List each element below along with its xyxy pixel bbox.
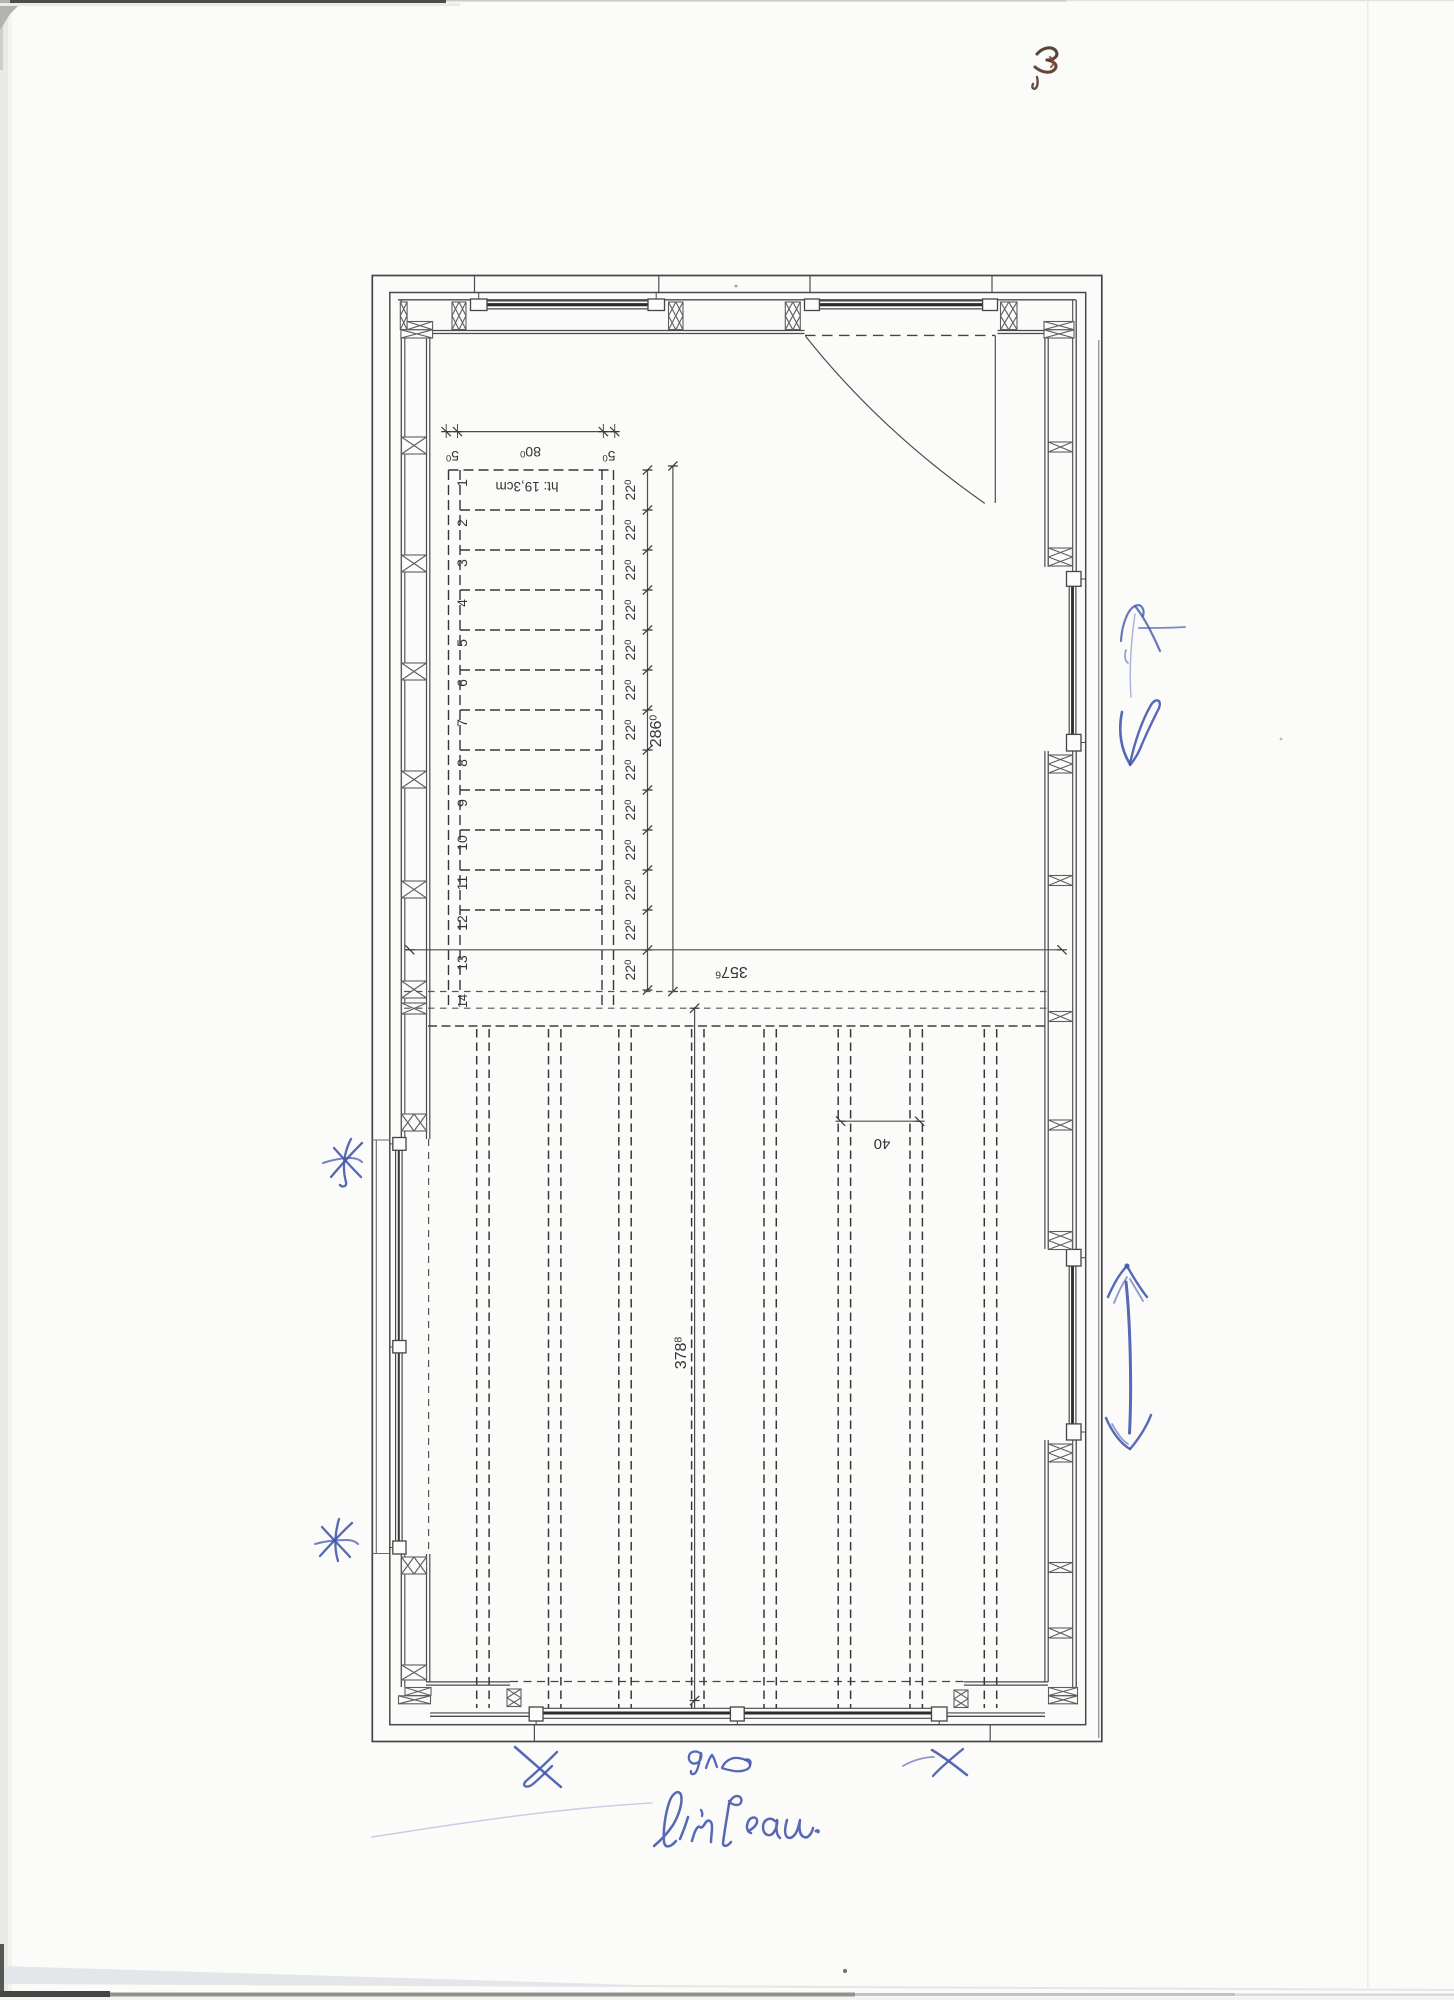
svg-text:4: 4 bbox=[454, 599, 470, 607]
svg-text:6: 6 bbox=[454, 679, 470, 687]
svg-text:14: 14 bbox=[456, 994, 470, 1008]
svg-text:8: 8 bbox=[454, 759, 470, 767]
svg-text:3: 3 bbox=[454, 559, 470, 567]
svg-text:12: 12 bbox=[454, 915, 470, 931]
svg-text:9: 9 bbox=[454, 799, 470, 807]
svg-text:ht: 19,3cm: ht: 19,3cm bbox=[495, 479, 558, 494]
svg-text:1: 1 bbox=[454, 479, 470, 487]
svg-text:11: 11 bbox=[454, 876, 470, 891]
svg-text:2: 2 bbox=[454, 519, 470, 527]
svg-text:5: 5 bbox=[454, 639, 470, 647]
svg-text:13: 13 bbox=[454, 955, 470, 971]
svg-text:7: 7 bbox=[454, 719, 470, 727]
svg-text:10: 10 bbox=[454, 835, 470, 851]
svg-text:40: 40 bbox=[874, 1135, 891, 1152]
